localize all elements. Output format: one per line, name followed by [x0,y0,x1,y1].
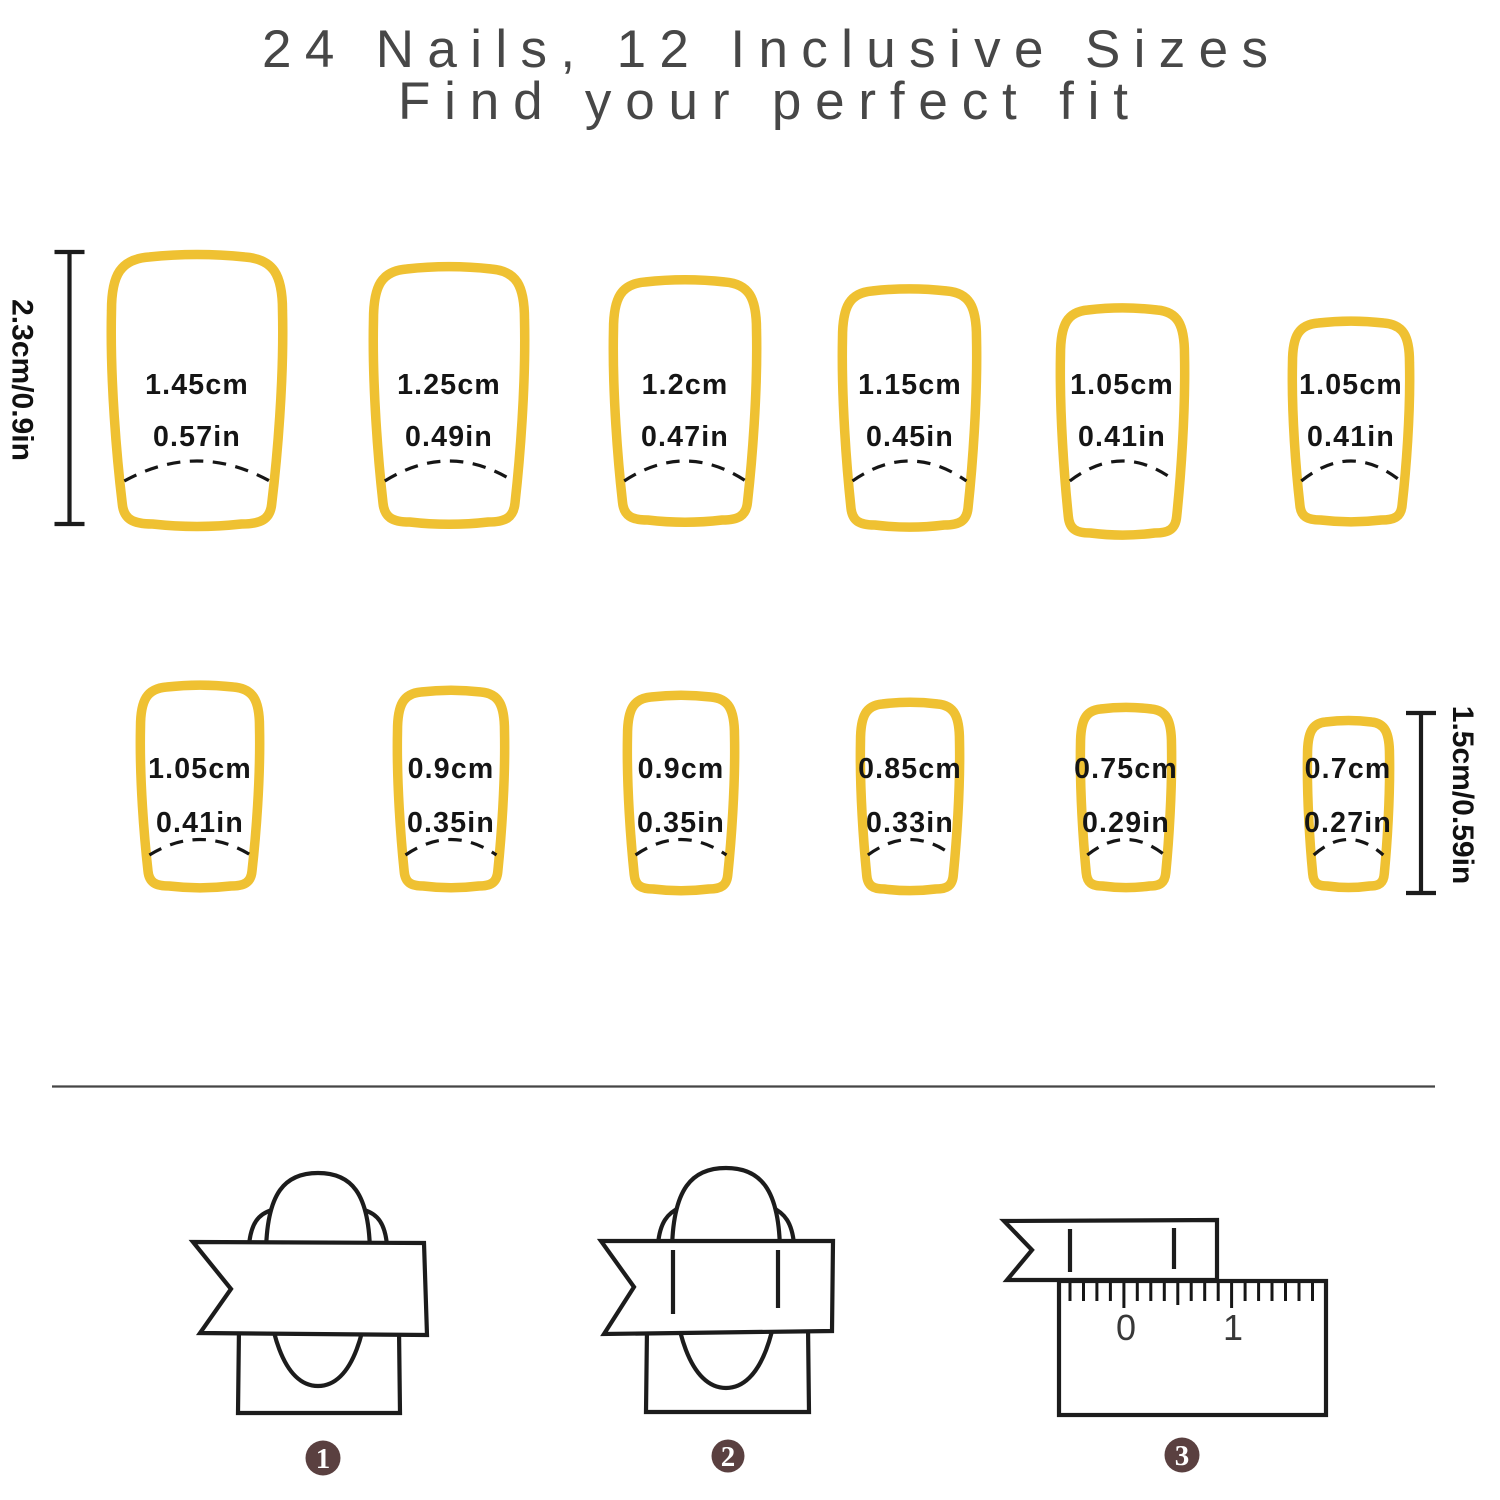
svg-text:0.85cm: 0.85cm [858,753,962,785]
svg-text:0.47in: 0.47in [641,421,729,453]
svg-text:0.75cm: 0.75cm [1074,753,1178,785]
svg-text:1.25cm: 1.25cm [397,369,501,401]
svg-text:24 Nails, 12 Inclusive Sizes: 24 Nails, 12 Inclusive Sizes [262,20,1268,79]
svg-text:1.15cm: 1.15cm [858,369,962,401]
svg-text:0.57in: 0.57in [153,421,241,453]
svg-text:0.7cm: 0.7cm [1305,753,1392,785]
svg-text:0.9cm: 0.9cm [408,753,495,785]
svg-text:2.3cm/0.9in: 2.3cm/0.9in [6,299,39,461]
svg-text:1.05cm: 1.05cm [1070,369,1174,401]
svg-text:1.2cm: 1.2cm [642,369,729,401]
svg-text:1.05cm: 1.05cm [1299,369,1403,401]
svg-text:0.29in: 0.29in [1082,807,1170,839]
svg-text:1.05cm: 1.05cm [148,753,252,785]
svg-text:0.45in: 0.45in [866,421,954,453]
svg-text:0.49in: 0.49in [405,421,493,453]
svg-text:1.5cm/0.59in: 1.5cm/0.59in [1446,706,1479,884]
svg-text:1: 1 [316,1443,331,1475]
svg-text:1.45cm: 1.45cm [145,369,249,401]
svg-text:2: 2 [721,1441,736,1473]
svg-text:0.35in: 0.35in [407,807,495,839]
svg-text:0.41in: 0.41in [1078,421,1166,453]
svg-text:0.33in: 0.33in [866,807,954,839]
svg-text:0.41in: 0.41in [156,807,244,839]
svg-text:1: 1 [1223,1307,1243,1348]
svg-text:0.27in: 0.27in [1304,807,1392,839]
svg-text:0: 0 [1116,1307,1136,1348]
svg-text:0.9cm: 0.9cm [638,753,725,785]
svg-text:3: 3 [1175,1440,1190,1472]
svg-text:0.35in: 0.35in [637,807,725,839]
svg-text:0.41in: 0.41in [1307,421,1395,453]
